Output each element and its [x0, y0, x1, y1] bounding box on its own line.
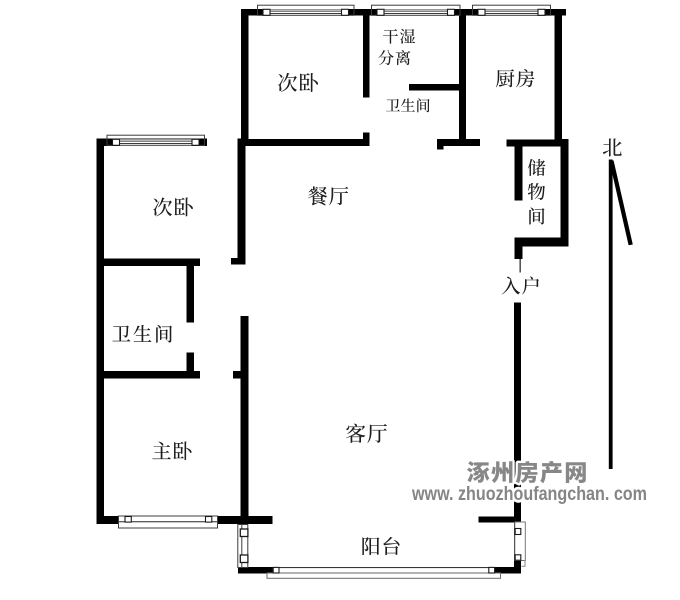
svg-text:www. zhuozhoufangchan. com: www. zhuozhoufangchan. com — [411, 483, 647, 505]
